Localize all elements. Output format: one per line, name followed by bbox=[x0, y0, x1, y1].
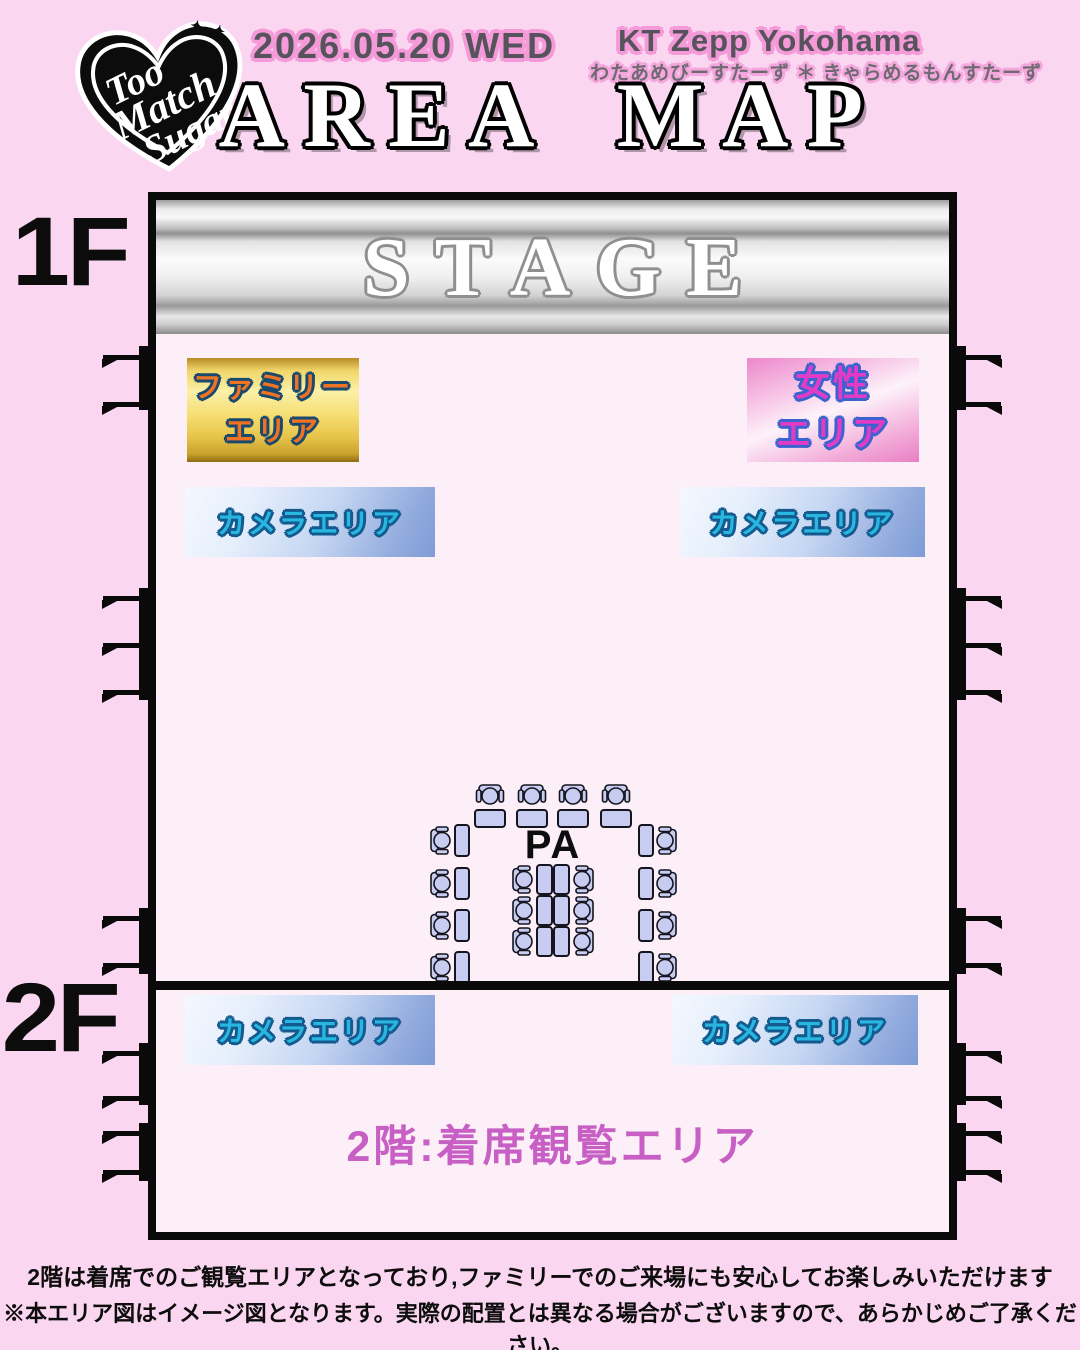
door-tick-icon bbox=[955, 596, 1001, 601]
floor-1-label: 1F bbox=[12, 196, 128, 308]
door-tick-icon bbox=[955, 690, 1001, 695]
door-tick-icon bbox=[955, 402, 1001, 407]
door-tick-icon bbox=[955, 643, 1001, 648]
floor-2-label: 2F bbox=[2, 962, 118, 1074]
camera-area-box-2f-left: カメラエリア bbox=[185, 995, 435, 1065]
family-area-label-line1: ファミリー bbox=[193, 366, 353, 410]
door-tick-icon bbox=[103, 596, 149, 601]
women-area-box: 女性 エリア bbox=[747, 358, 919, 462]
venue-name: KT Zepp Yokohama bbox=[618, 23, 921, 59]
camera-area-box-1f-left: カメラエリア bbox=[185, 487, 435, 557]
floor2-seating-label: 2階:着席観覧エリア bbox=[156, 1112, 949, 1174]
family-area-box: ファミリー エリア bbox=[187, 358, 359, 462]
pa-label: PA bbox=[525, 823, 582, 867]
door-tick-icon bbox=[103, 402, 149, 407]
door-tick-icon bbox=[955, 1051, 1001, 1056]
family-area-label-line2: エリア bbox=[225, 410, 321, 454]
door-tick-icon bbox=[103, 1051, 149, 1056]
pa-desks-and-chairs bbox=[431, 785, 676, 983]
desk-chair-unit bbox=[513, 865, 593, 956]
event-date: 2026.05.20 WED bbox=[253, 25, 555, 67]
desk-chair-unit bbox=[475, 785, 631, 827]
camera-area-label: カメラエリア bbox=[702, 1010, 888, 1050]
venue-map: STAGE ファミリー エリア 女性 エリア カメラエリア カメラエリア bbox=[148, 192, 957, 1240]
stage-banner: STAGE bbox=[156, 200, 949, 334]
women-area-label-line1: 女性 bbox=[795, 360, 871, 410]
stage-label: STAGE bbox=[338, 219, 768, 316]
camera-area-label: カメラエリア bbox=[217, 502, 403, 542]
door-tick-icon bbox=[955, 355, 1001, 360]
camera-area-box-2f-right: カメラエリア bbox=[672, 995, 918, 1065]
footer-note-1: 2階は着席でのご観覧エリアとなっており,ファミリーでのご来場にも安心してお楽しみ… bbox=[0, 1258, 1080, 1292]
door-tick-icon bbox=[955, 1096, 1001, 1101]
pa-seating-area: PA bbox=[425, 780, 680, 983]
camera-area-label: カメラエリア bbox=[709, 502, 895, 542]
door-tick-icon bbox=[103, 916, 149, 921]
footer-note-2: ※本エリア図はイメージ図となります。実際の配置とは異なる場合がございますので、あ… bbox=[0, 1296, 1080, 1350]
door-tick-icon bbox=[955, 1131, 1001, 1136]
area-map-poster: Too Match Sugar ✦ ✦ 2026.05.20 WED KT Ze… bbox=[0, 0, 1080, 1350]
door-tick-icon bbox=[955, 963, 1001, 968]
door-tick-icon bbox=[103, 1170, 149, 1175]
door-tick-icon bbox=[955, 916, 1001, 921]
camera-area-label: カメラエリア bbox=[217, 1010, 403, 1050]
page-title: AREA MAP bbox=[120, 62, 980, 168]
door-tick-icon bbox=[103, 1131, 149, 1136]
door-tick-icon bbox=[103, 643, 149, 648]
door-tick-icon bbox=[103, 963, 149, 968]
door-tick-icon bbox=[103, 1096, 149, 1101]
desk-chair-unit bbox=[431, 825, 469, 983]
floor-divider-line bbox=[148, 981, 957, 990]
door-tick-icon bbox=[955, 1170, 1001, 1175]
door-tick-icon bbox=[103, 355, 149, 360]
door-tick-icon bbox=[103, 690, 149, 695]
camera-area-box-1f-right: カメラエリア bbox=[680, 487, 925, 557]
desk-chair-unit bbox=[639, 825, 676, 983]
women-area-label-line2: エリア bbox=[776, 410, 890, 460]
